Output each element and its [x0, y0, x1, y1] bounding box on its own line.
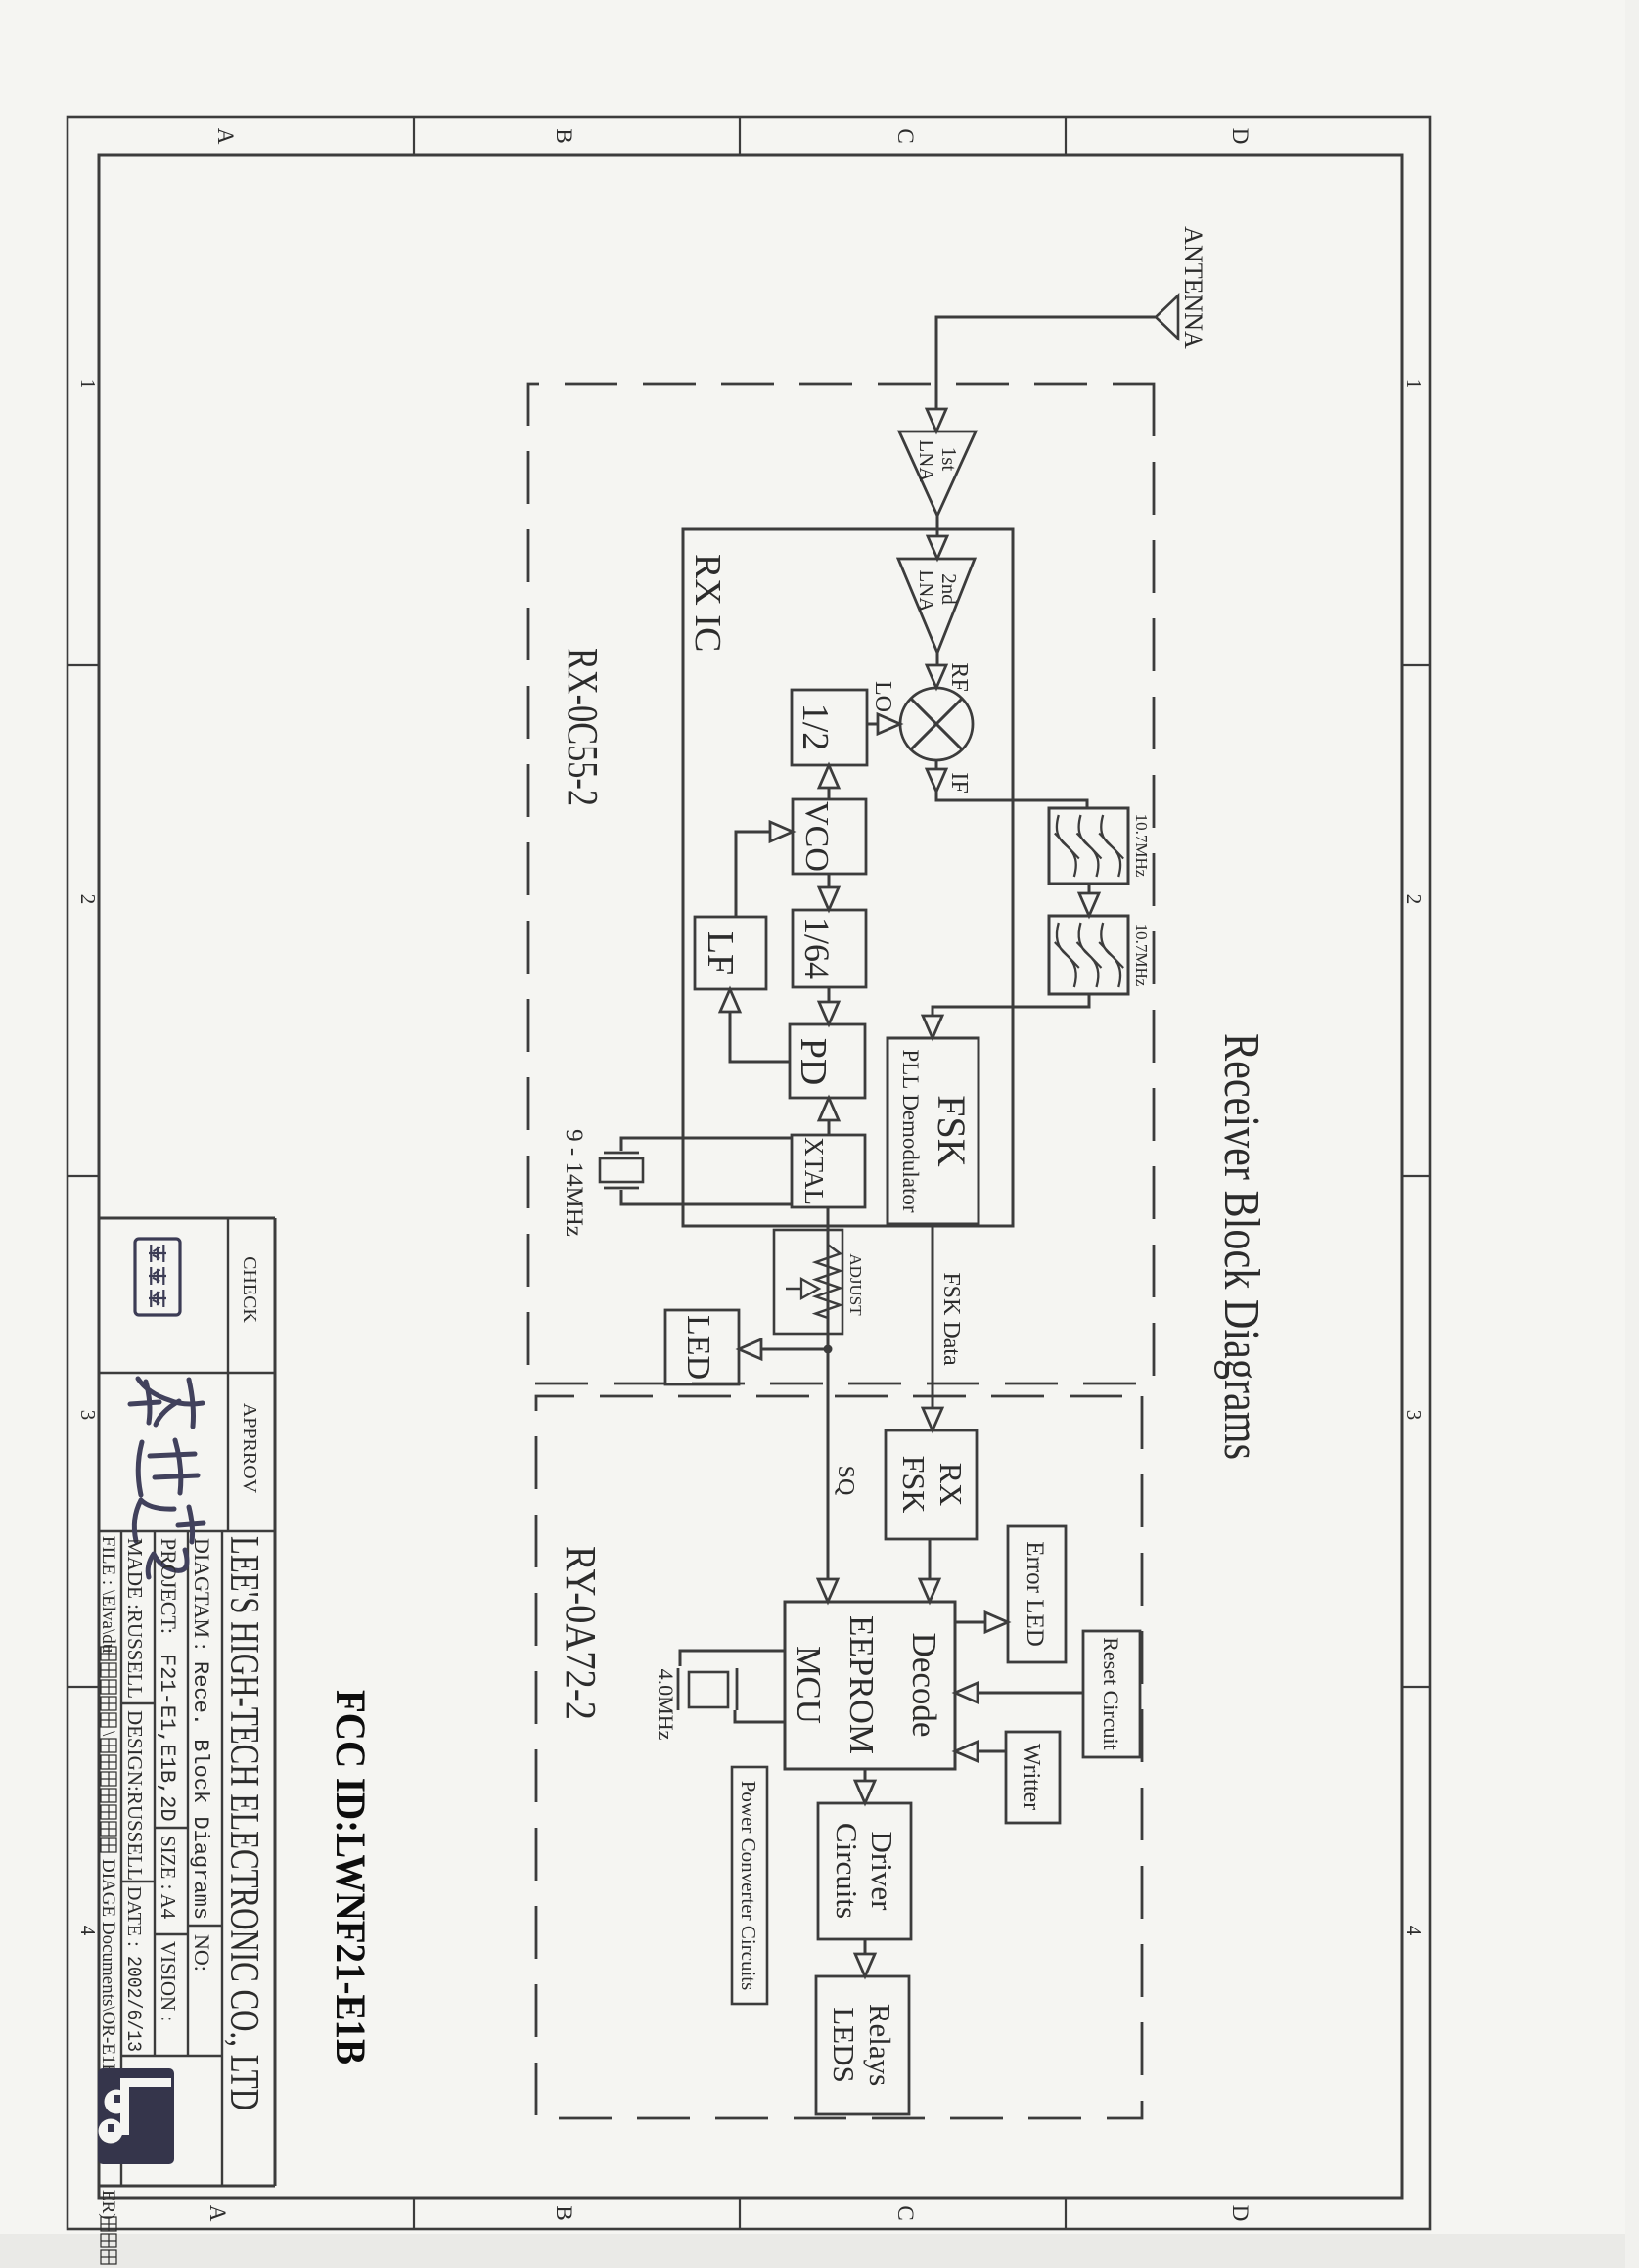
svg-text:PROJECT:: PROJECT:	[157, 1538, 181, 1634]
svg-text:FCC ID:LWNF21-E1B: FCC ID:LWNF21-E1B	[327, 1690, 373, 2064]
svg-text:Reset Circuit: Reset Circuit	[1099, 1637, 1123, 1749]
svg-text:\: \	[98, 1731, 118, 1737]
svg-text:A: A	[205, 2205, 230, 2222]
svg-text:VISION :: VISION :	[157, 1941, 180, 2021]
svg-text:Circuits: Circuits	[830, 1823, 864, 1919]
svg-text:FSK: FSK	[930, 1095, 974, 1166]
svg-text:Driver: Driver	[865, 1832, 899, 1912]
svg-text:C: C	[893, 128, 918, 143]
svg-text:MCU: MCU	[790, 1646, 828, 1724]
svg-text:DIAGTAM :: DIAGTAM :	[190, 1538, 214, 1650]
svg-text:XTAL: XTAL	[799, 1137, 829, 1205]
svg-text:RX: RX	[933, 1463, 969, 1506]
svg-text:FILE : \Elva\du: FILE : \Elva\du	[98, 1536, 118, 1654]
svg-text:1: 1	[1402, 379, 1426, 389]
svg-text:LF: LF	[700, 931, 741, 975]
svg-text:ANTENNA: ANTENNA	[1179, 226, 1207, 349]
svg-text:LED: LED	[680, 1315, 716, 1380]
svg-text:10.7MHz: 10.7MHz	[1132, 924, 1151, 987]
svg-text:2nd: 2nd	[937, 573, 961, 605]
svg-text:PLL Demodulator: PLL Demodulator	[898, 1049, 923, 1212]
svg-text:FSK Data: FSK Data	[938, 1272, 964, 1366]
svg-text:LNA: LNA	[915, 439, 938, 482]
svg-text:EEPROM: EEPROM	[842, 1615, 881, 1754]
svg-text:C: C	[893, 2205, 918, 2220]
svg-text:NO:: NO:	[190, 1934, 214, 1972]
svg-text:SQ: SQ	[833, 1466, 858, 1496]
svg-text:4: 4	[76, 1926, 100, 1936]
svg-text:IF: IF	[946, 772, 972, 793]
svg-text:4.0MHz: 4.0MHz	[654, 1669, 678, 1741]
svg-text:ER): ER)	[98, 2190, 118, 2220]
svg-text:3: 3	[1402, 1410, 1426, 1421]
svg-text:LNA: LNA	[915, 569, 938, 612]
svg-text:2: 2	[1402, 894, 1426, 905]
svg-text:Receiver Block Diagrams: Receiver Block Diagrams	[1213, 1033, 1269, 1460]
svg-text:APPRROV: APPRROV	[239, 1403, 260, 1494]
svg-text:10.7MHz: 10.7MHz	[1132, 814, 1151, 878]
svg-text:1: 1	[76, 379, 100, 389]
svg-text:1/2: 1/2	[795, 703, 836, 751]
svg-text:Power Converter Circuits: Power Converter Circuits	[737, 1781, 760, 1991]
svg-text:RY-0A72-2: RY-0A72-2	[557, 1546, 605, 1720]
svg-text:F21-E1,E1B,2D: F21-E1,E1B,2D	[155, 1654, 179, 1822]
svg-text:Writter: Writter	[1019, 1744, 1044, 1810]
svg-text:1/64: 1/64	[797, 917, 837, 979]
svg-text:2: 2	[76, 894, 100, 905]
svg-text:Rece. Block Diagrams: Rece. Block Diagrams	[188, 1661, 212, 1920]
svg-text:DATE :: DATE :	[123, 1886, 145, 1947]
svg-text:ADJUST: ADJUST	[846, 1253, 865, 1316]
svg-text:LEE'S HIGH-TECH ELECTRONIC CO.: LEE'S HIGH-TECH ELECTRONIC CO., LTD	[221, 1536, 266, 2110]
svg-text:2002/6/13: 2002/6/13	[121, 1956, 144, 2052]
svg-text:Relays: Relays	[863, 2004, 897, 2086]
svg-text:PD: PD	[793, 1038, 834, 1086]
svg-text:RX-0C55-2: RX-0C55-2	[559, 648, 607, 806]
svg-text:CHECK: CHECK	[239, 1256, 260, 1323]
svg-text:3: 3	[76, 1410, 100, 1421]
svg-text:D: D	[1228, 128, 1252, 145]
svg-text:FSK: FSK	[896, 1456, 932, 1514]
svg-text:A: A	[213, 128, 238, 145]
svg-text:RF: RF	[946, 662, 972, 691]
svg-text:4: 4	[1402, 1926, 1426, 1936]
svg-text:D: D	[1228, 2205, 1252, 2222]
svg-text:Decode: Decode	[905, 1633, 943, 1738]
svg-text:RX IC: RX IC	[687, 554, 728, 652]
svg-text:B: B	[552, 128, 576, 143]
svg-text:B: B	[552, 2205, 576, 2220]
svg-text:LO: LO	[870, 681, 895, 712]
svg-text:SIZE : A4: SIZE : A4	[157, 1836, 180, 1920]
svg-text:9 - 14MHz: 9 - 14MHz	[561, 1129, 587, 1237]
svg-text:1st: 1st	[937, 447, 961, 472]
svg-text:DIAGE Documents\OR-E1E1B: DIAGE Documents\OR-E1E1B	[98, 1859, 118, 2097]
svg-text:DESIGN:RUSSELL: DESIGN:RUSSELL	[123, 1710, 147, 1881]
svg-text:Error LED: Error LED	[1022, 1541, 1048, 1647]
svg-text:LEDS: LEDS	[827, 2007, 861, 2083]
svg-text:VCO: VCO	[798, 801, 835, 872]
svg-text:MADE :RUSSELL: MADE :RUSSELL	[123, 1538, 147, 1699]
